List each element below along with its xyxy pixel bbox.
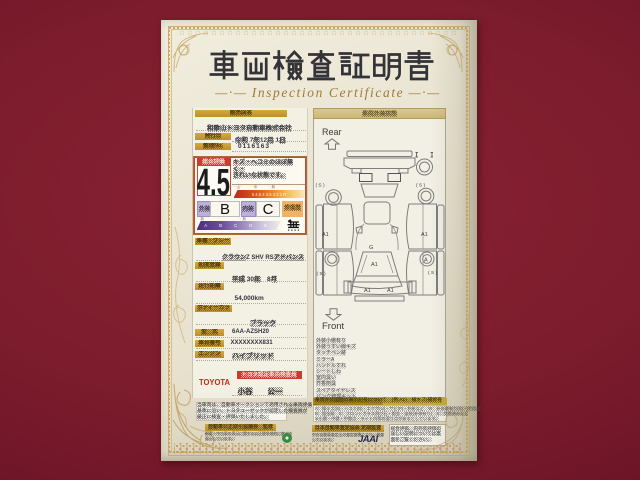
svg-text:G: G: [369, 245, 373, 251]
svg-text:( S ): ( S ): [316, 183, 325, 189]
svg-text:A1: A1: [421, 232, 428, 238]
svg-text:( S ): ( S ): [416, 183, 425, 189]
svg-text:A1: A1: [387, 288, 394, 294]
svg-text:( S ): ( S ): [317, 271, 326, 277]
svg-text:A: A: [424, 258, 428, 264]
svg-text:A1: A1: [371, 262, 378, 268]
svg-text:A1: A1: [364, 288, 371, 294]
svg-text:A1: A1: [322, 232, 329, 238]
